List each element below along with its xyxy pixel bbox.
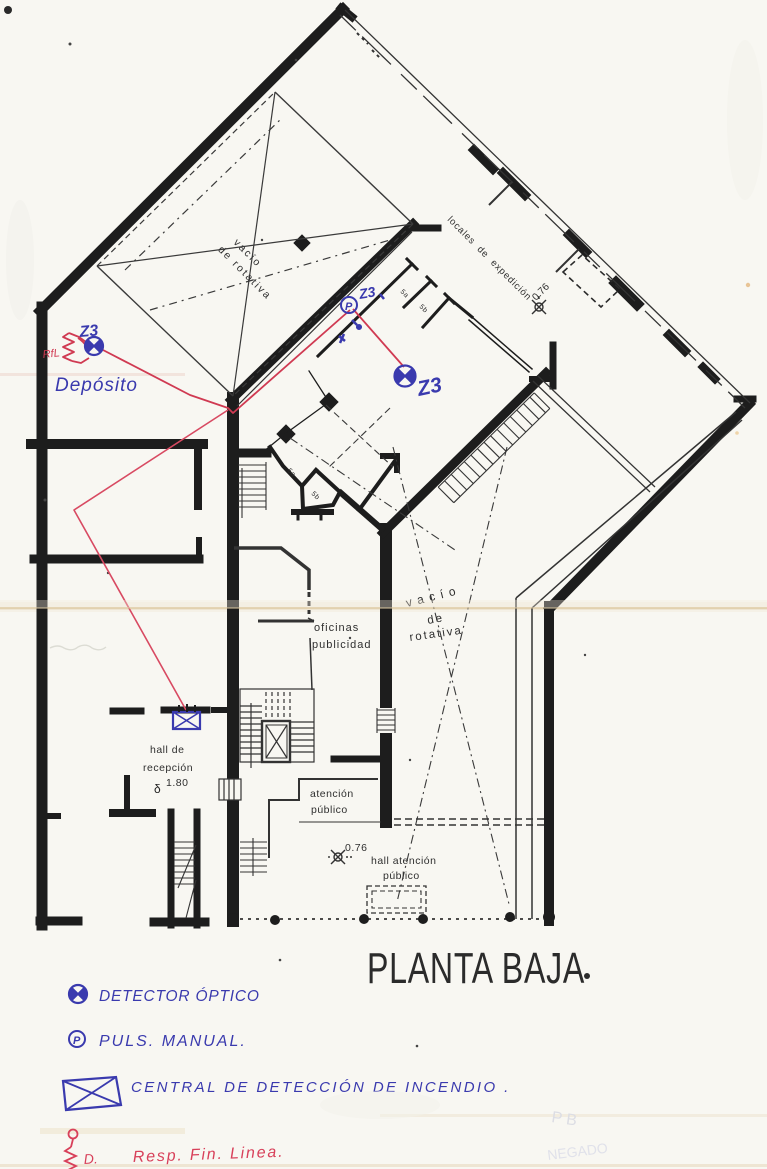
svg-text:hall de: hall de — [150, 744, 184, 756]
svg-text:Depósito: Depósito — [55, 375, 138, 396]
svg-text:atención: atención — [310, 788, 354, 800]
svg-text:PULS. MANUAL.: PULS. MANUAL. — [99, 1033, 247, 1050]
svg-text:D.: D. — [83, 1150, 98, 1167]
svg-text:PLANTA BAJA: PLANTA BAJA — [367, 944, 585, 993]
svg-text:recepción: recepción — [143, 762, 193, 774]
svg-text:hall atención: hall atención — [371, 855, 436, 867]
svg-text:P: P — [345, 301, 353, 313]
svg-text:Z3: Z3 — [78, 322, 99, 341]
svg-text:Z3: Z3 — [357, 283, 377, 302]
svg-text:1.80: 1.80 — [166, 777, 188, 789]
svg-text:público: público — [383, 870, 420, 882]
svg-text:oficinas: oficinas — [314, 622, 359, 634]
svg-text:RfL: RfL — [42, 347, 60, 361]
svg-text:CENTRAL DE DETECCIÓN DE INCEND: CENTRAL DE DETECCIÓN DE INCENDIO . — [131, 1079, 511, 1096]
svg-text:δ: δ — [154, 782, 161, 796]
svg-text:publicidad: publicidad — [312, 639, 372, 651]
svg-text:público: público — [311, 804, 348, 816]
svg-text:P B: P B — [550, 1109, 578, 1129]
svg-text:0.76: 0.76 — [345, 842, 367, 854]
svg-text:DETECTOR ÓPTICO: DETECTOR ÓPTICO — [99, 988, 260, 1005]
svg-text:P: P — [73, 1035, 81, 1047]
